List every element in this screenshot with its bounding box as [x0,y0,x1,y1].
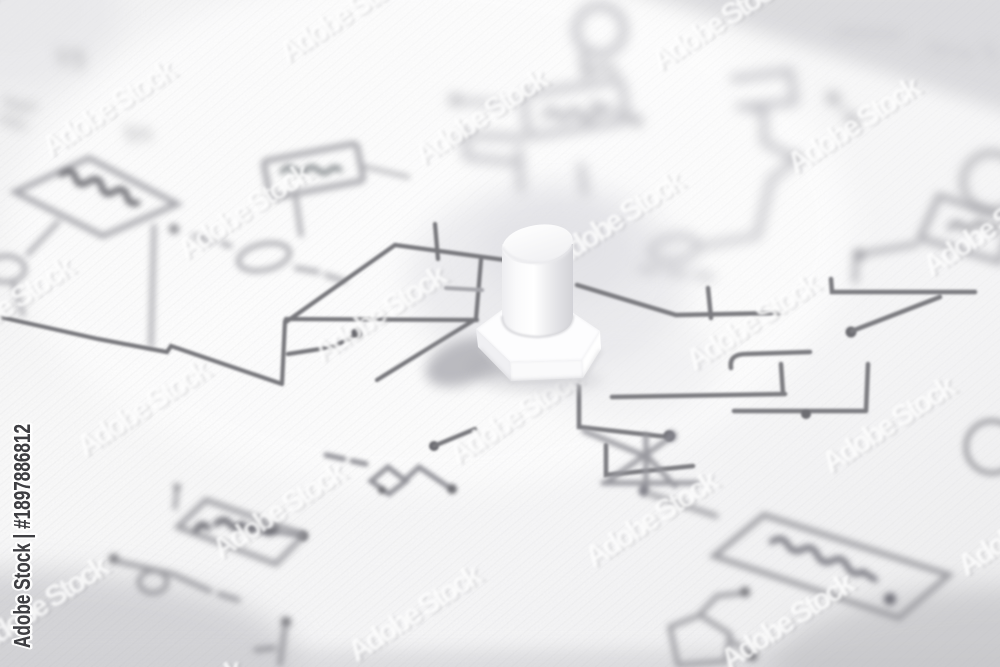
svg-text:Adobe Stock | #1897886812: Adobe Stock | #1897886812 [9,424,35,648]
